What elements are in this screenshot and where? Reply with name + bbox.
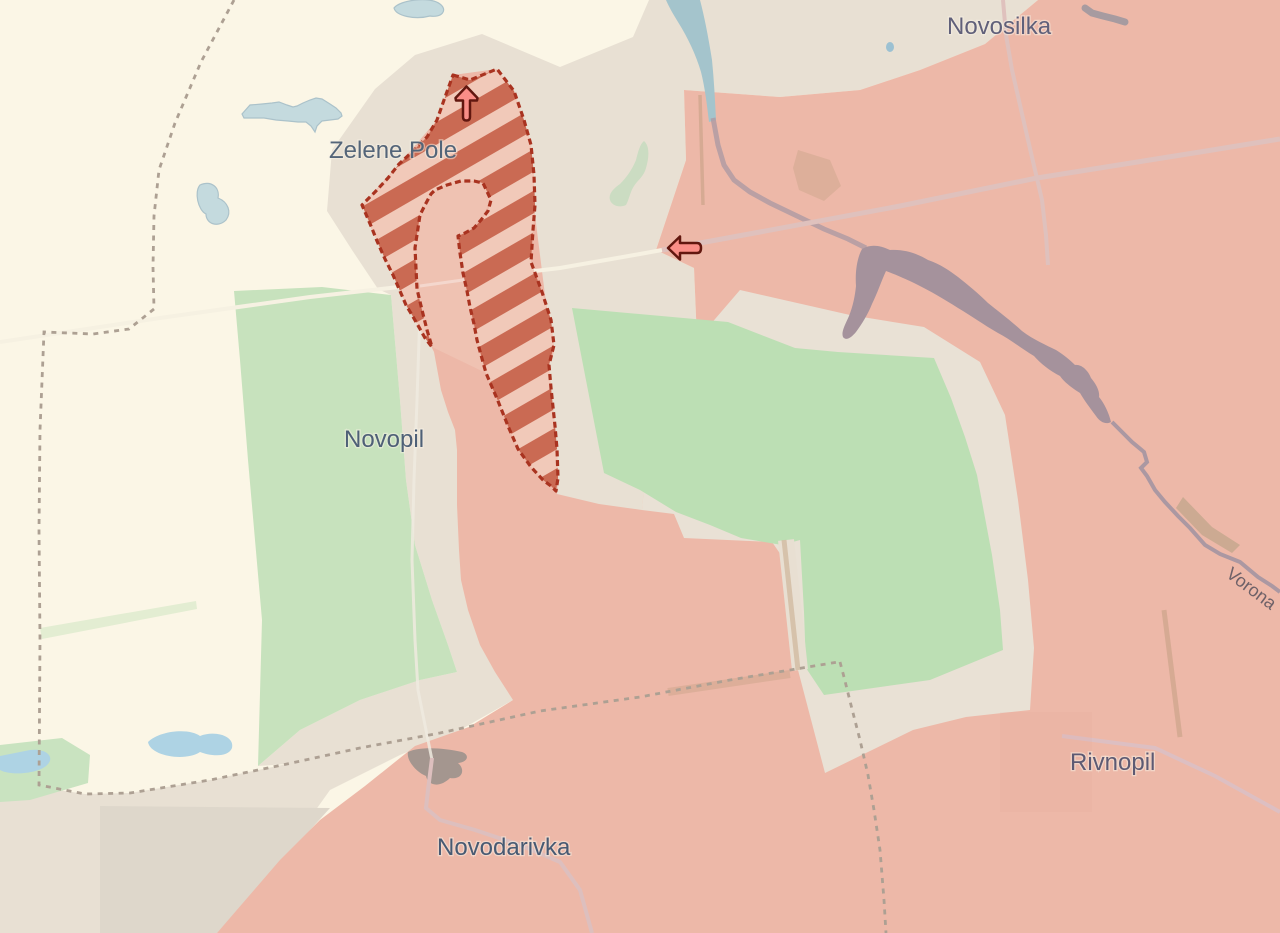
svg-text:Novodarivka: Novodarivka (437, 834, 571, 861)
svg-text:Novopil: Novopil (344, 426, 424, 453)
svg-text:Rivnopil: Rivnopil (1070, 749, 1155, 776)
svg-text:Novosilka: Novosilka (947, 13, 1052, 40)
svg-text:Zelene Pole: Zelene Pole (329, 137, 457, 164)
